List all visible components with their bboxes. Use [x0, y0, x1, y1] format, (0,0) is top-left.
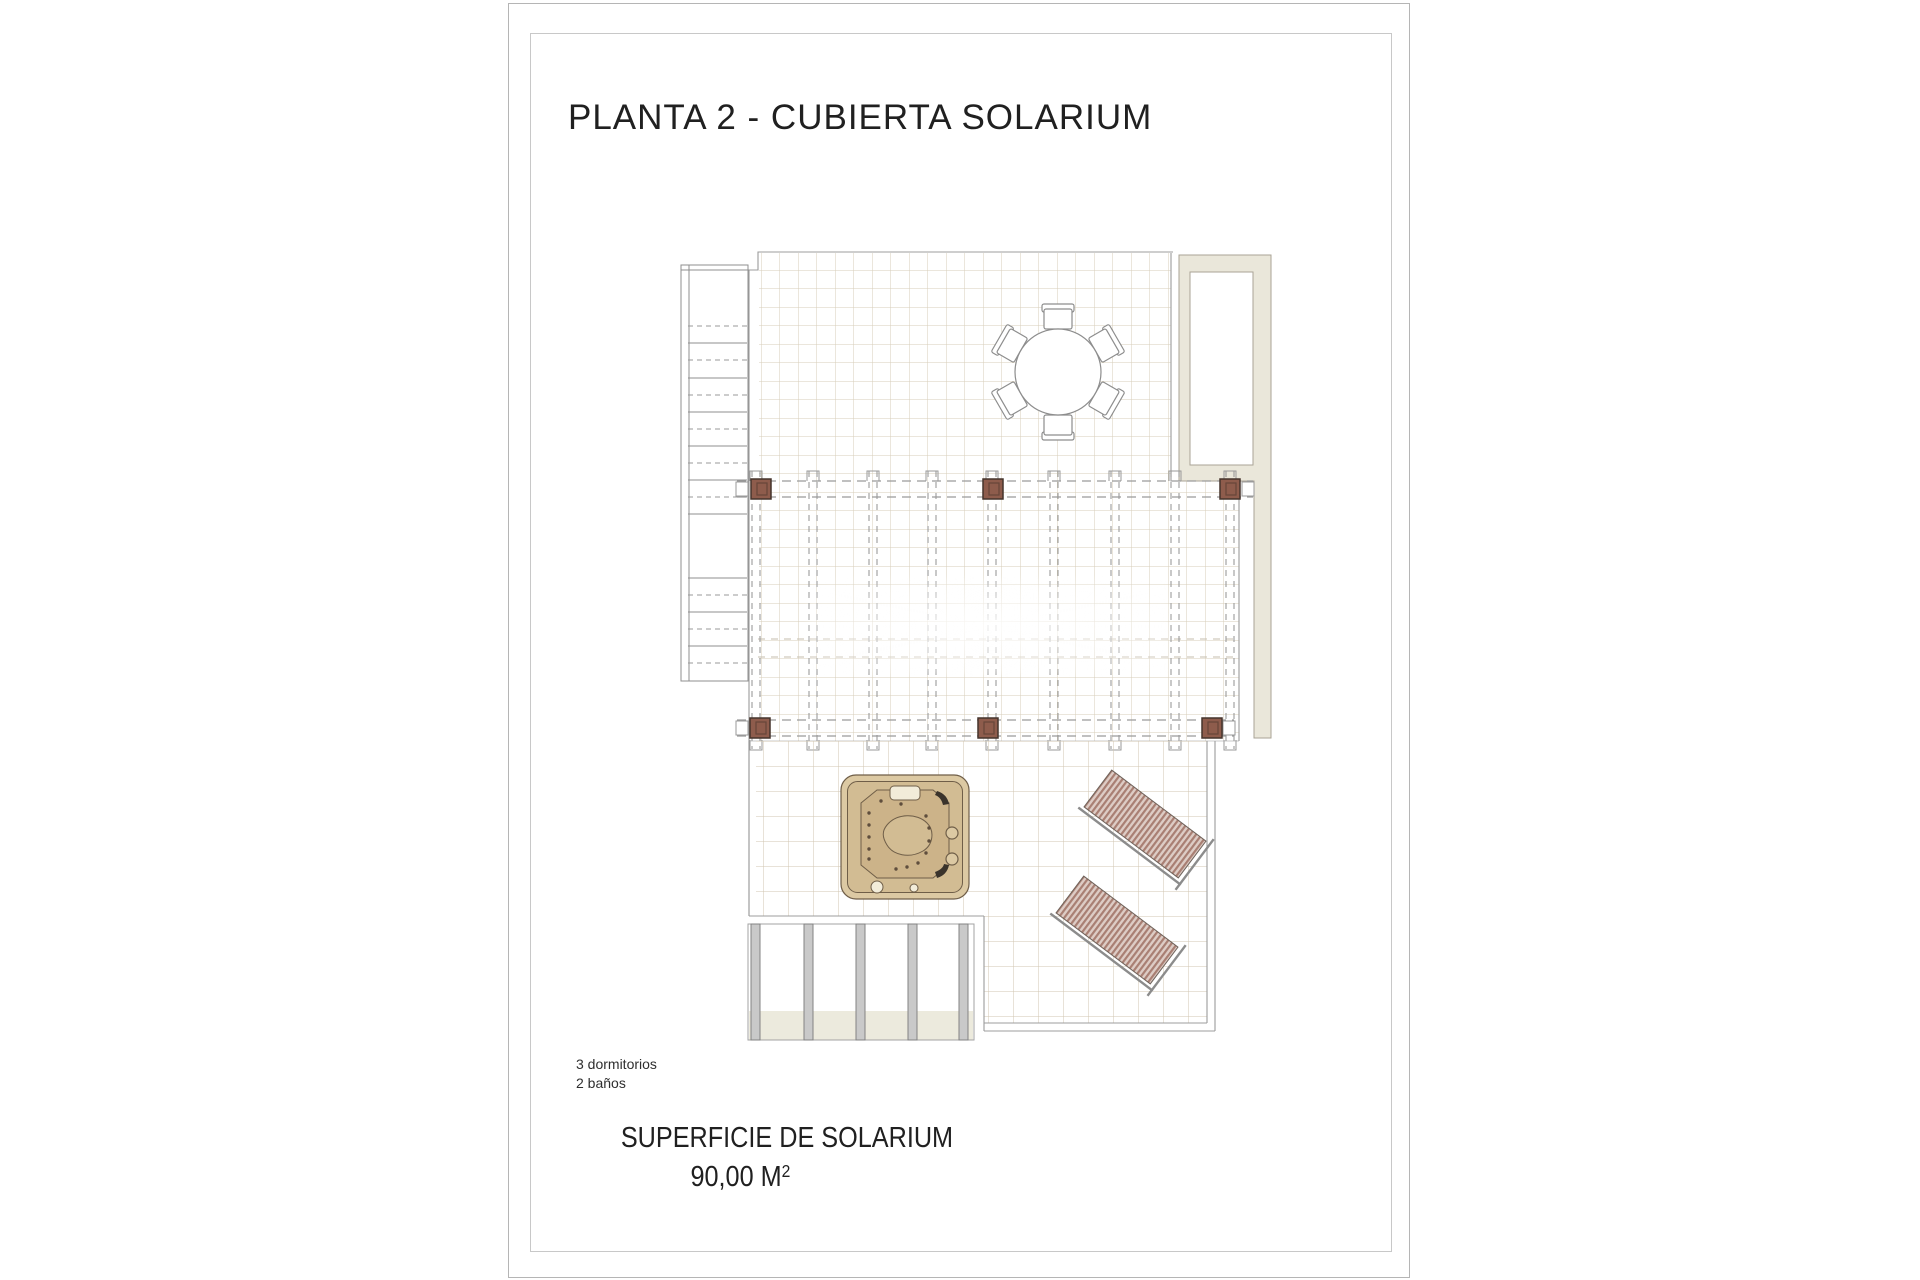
porch-column — [959, 924, 968, 1040]
porch-column — [751, 924, 760, 1040]
area-value: 90,00 M2 — [690, 1155, 790, 1194]
plan-title: PLANTA 2 - CUBIERTA SOLARIUM — [568, 98, 1152, 138]
porch-column — [908, 924, 917, 1040]
porch-column — [804, 924, 813, 1040]
pergola-post — [983, 479, 1003, 499]
round-table — [1015, 329, 1101, 415]
floor-plan-drawing — [661, 241, 1321, 1061]
porch — [748, 924, 974, 1040]
staircase — [681, 265, 749, 681]
pergola-post — [978, 718, 998, 738]
pergola-post — [750, 718, 770, 738]
pergola-post — [1202, 718, 1222, 738]
info-bedrooms: 3 dormitorios — [576, 1055, 657, 1074]
info-bathrooms: 2 baños — [576, 1074, 657, 1093]
hot-tub — [841, 775, 969, 899]
pergola-post — [751, 479, 771, 499]
screenshot-canvas: PLANTA 2 - CUBIERTA SOLARIUM — [0, 0, 1920, 1280]
porch-column — [856, 924, 865, 1040]
area-block: SUPERFICIE DE SOLARIUM 90,00 M2 — [596, 1122, 884, 1194]
area-sup: 2 — [781, 1161, 790, 1181]
unit-info: 3 dormitorios 2 baños — [576, 1055, 657, 1093]
pergola-post — [1220, 479, 1240, 499]
area-label: SUPERFICIE DE SOLARIUM — [621, 1122, 953, 1155]
plan-sheet: PLANTA 2 - CUBIERTA SOLARIUM — [508, 3, 1410, 1278]
